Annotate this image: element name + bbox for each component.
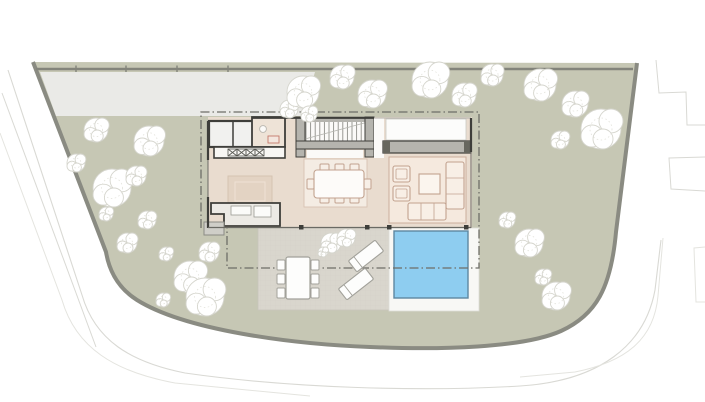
stair-lower-wall bbox=[296, 141, 374, 149]
stair-flank-wall-right bbox=[365, 117, 374, 157]
outdoor-chair bbox=[311, 288, 319, 298]
tree-canopy-circle bbox=[342, 238, 351, 247]
tree-canopy-circle bbox=[556, 140, 565, 149]
tree bbox=[159, 247, 174, 261]
staircase bbox=[296, 117, 374, 158]
tree bbox=[535, 269, 552, 285]
sofa-right bbox=[446, 162, 464, 209]
site-plan-canvas bbox=[0, 0, 705, 402]
kitchen-sink bbox=[231, 206, 251, 215]
stair-opening bbox=[307, 150, 363, 158]
dining-room bbox=[304, 159, 371, 207]
patio-void bbox=[386, 119, 466, 140]
tree-canopy-circle bbox=[550, 296, 564, 310]
tree-canopy-circle bbox=[593, 129, 613, 149]
outdoor-chair bbox=[277, 274, 285, 284]
outdoor-chair bbox=[277, 288, 285, 298]
wall-band bbox=[383, 141, 471, 153]
sofa-bottom bbox=[408, 203, 446, 220]
tree-canopy-circle bbox=[132, 176, 142, 186]
living-room bbox=[389, 157, 466, 223]
outdoor-table bbox=[286, 257, 310, 299]
tree-canopy-circle bbox=[523, 243, 537, 257]
swimming-pool bbox=[394, 231, 468, 298]
outdoor-chair bbox=[277, 260, 285, 270]
outdoor-dining-set bbox=[277, 257, 319, 299]
dining-table bbox=[314, 170, 364, 198]
kitchen-counter-top bbox=[214, 147, 285, 158]
coffee-table bbox=[419, 174, 440, 194]
entry-room bbox=[209, 121, 253, 147]
living-room-north-wall bbox=[383, 119, 471, 153]
outdoor-chair bbox=[311, 274, 319, 284]
driveway bbox=[40, 72, 315, 116]
villa-building bbox=[204, 117, 472, 235]
tree-canopy-circle bbox=[570, 104, 583, 117]
dining-chair bbox=[364, 179, 371, 189]
armchair bbox=[393, 166, 410, 182]
tree bbox=[156, 293, 171, 307]
tree-canopy-circle bbox=[123, 243, 133, 253]
stair-flank-wall-left bbox=[296, 117, 305, 157]
shrub bbox=[318, 247, 329, 257]
tree-canopy-circle bbox=[143, 220, 152, 229]
tree bbox=[301, 106, 318, 122]
site-plan-drawing bbox=[0, 0, 705, 402]
tree bbox=[499, 212, 516, 228]
armchair bbox=[393, 186, 410, 201]
sink-fixture bbox=[260, 126, 267, 133]
wall-cap-left bbox=[383, 141, 390, 153]
pantry-room bbox=[252, 117, 285, 147]
dining-set bbox=[307, 164, 371, 203]
entry-room-walls bbox=[209, 121, 253, 147]
dining-chair bbox=[307, 179, 314, 189]
column bbox=[387, 225, 392, 230]
column bbox=[365, 225, 370, 230]
outdoor-chair bbox=[311, 260, 319, 270]
tree-canopy-circle bbox=[205, 252, 215, 262]
appliance bbox=[268, 136, 279, 143]
kitchen-appliance bbox=[254, 206, 271, 217]
tree-canopy-circle bbox=[285, 109, 294, 118]
column bbox=[464, 225, 469, 230]
tree-canopy-circle bbox=[534, 85, 550, 101]
tree-canopy-circle bbox=[297, 92, 313, 108]
tree-canopy-circle bbox=[72, 163, 81, 172]
column bbox=[299, 225, 304, 230]
tree bbox=[99, 207, 114, 221]
tree-canopy-circle bbox=[366, 94, 380, 108]
